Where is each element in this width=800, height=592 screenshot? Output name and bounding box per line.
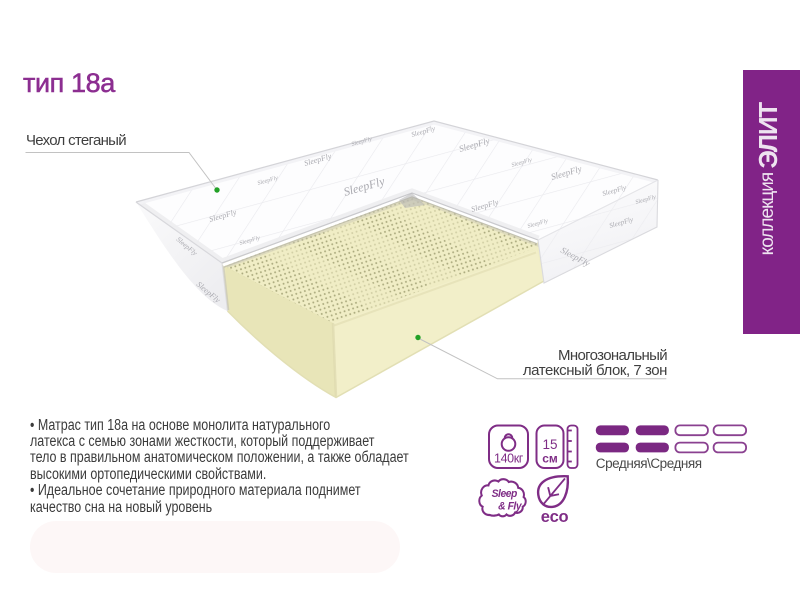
svg-text:15: 15 [542,437,557,452]
svg-text:Sleep: Sleep [492,488,518,500]
svg-text:Средняя\Средняя: Средняя\Средняя [596,456,702,471]
svg-text:& Fly: & Fly [498,500,522,512]
svg-text:см: см [542,452,558,466]
svg-text:eco: eco [541,508,569,526]
svg-text:140кг: 140кг [494,452,524,466]
